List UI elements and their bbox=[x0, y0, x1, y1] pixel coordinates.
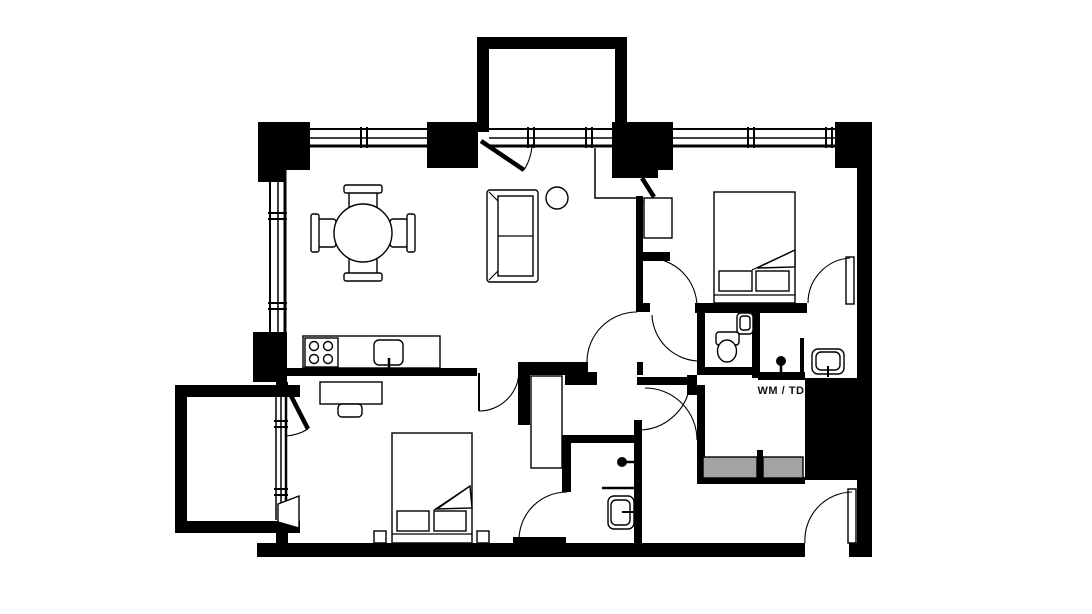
dining-table-set bbox=[311, 185, 415, 281]
toilet-door bbox=[652, 315, 700, 361]
washer-dryer bbox=[703, 457, 803, 478]
hand-basin bbox=[737, 313, 753, 334]
toilet bbox=[716, 332, 739, 362]
pillow bbox=[397, 511, 429, 531]
pillow bbox=[434, 511, 466, 531]
washbasin-bathroom2 bbox=[608, 496, 638, 529]
window-balcony-left bbox=[274, 390, 299, 528]
window-left bbox=[268, 170, 287, 332]
floor-plan-svg: WM / TD bbox=[0, 0, 1092, 614]
plant bbox=[546, 187, 568, 209]
hall-doors bbox=[638, 385, 697, 440]
kitchen-counter bbox=[303, 336, 440, 371]
washing-machine bbox=[703, 457, 757, 478]
wm-td-label: WM / TD bbox=[758, 385, 805, 397]
tall-cupboard bbox=[531, 376, 562, 468]
nightstand-right bbox=[477, 531, 489, 543]
dining-chair-right bbox=[390, 219, 408, 247]
nightstand-left bbox=[374, 531, 386, 543]
dining-chair-left bbox=[318, 219, 336, 247]
window-top-right bbox=[673, 127, 835, 148]
desk-and-chair bbox=[320, 382, 382, 417]
dining-chair-left-back bbox=[311, 214, 319, 252]
ensuite-door bbox=[808, 257, 854, 304]
entrance-door bbox=[805, 489, 856, 543]
bathroom2-door bbox=[519, 492, 567, 540]
sofa bbox=[487, 190, 538, 282]
wardrobe-1 bbox=[644, 198, 672, 238]
bedroom1-rear-door bbox=[642, 252, 697, 307]
dining-chair-bottom-back bbox=[344, 273, 382, 281]
dining-chair-top-back bbox=[344, 185, 382, 193]
shower-head-2 bbox=[617, 457, 636, 467]
window-top-left bbox=[310, 127, 427, 148]
bedroom2-door bbox=[479, 371, 519, 411]
pillow bbox=[719, 271, 752, 291]
living-room-door bbox=[587, 312, 637, 362]
dining-chair-right-back bbox=[407, 214, 415, 252]
bed-2 bbox=[392, 433, 472, 543]
window-top-centre bbox=[489, 127, 615, 148]
desk-chair bbox=[338, 404, 362, 417]
floor-plan: WM / TD bbox=[0, 0, 1092, 614]
pillow bbox=[756, 271, 789, 291]
bed-1 bbox=[714, 192, 795, 303]
washbasin-ensuite bbox=[812, 349, 844, 377]
hob bbox=[305, 338, 338, 367]
desk bbox=[320, 382, 382, 404]
dining-table bbox=[334, 204, 392, 262]
tumble-dryer bbox=[763, 457, 803, 478]
